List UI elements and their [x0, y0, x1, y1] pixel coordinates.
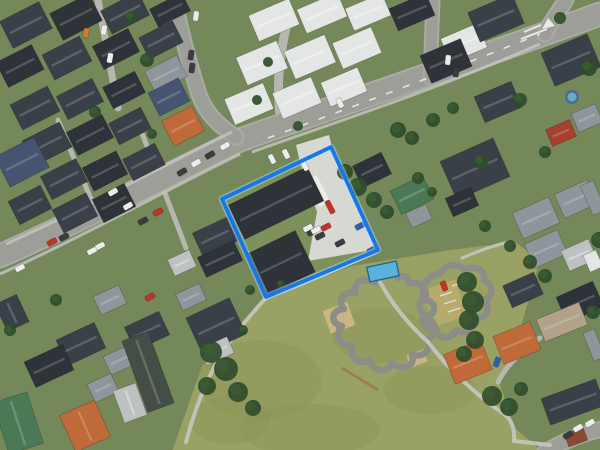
tree-highlight	[381, 206, 389, 214]
car	[193, 11, 200, 22]
tree-highlight	[90, 107, 97, 114]
tree-highlight	[253, 96, 259, 102]
car	[453, 67, 459, 77]
tree-highlight	[468, 333, 478, 343]
tree-highlight	[514, 94, 522, 102]
tree-highlight	[141, 54, 149, 62]
tree-highlight	[406, 132, 414, 140]
map-viewport[interactable]	[0, 0, 600, 450]
tree-highlight	[505, 241, 512, 248]
tree-highlight	[200, 379, 210, 389]
tree-highlight	[230, 384, 241, 395]
tree-highlight	[480, 221, 487, 228]
tree-highlight	[413, 173, 420, 180]
tree-highlight	[539, 270, 547, 278]
tree-highlight	[216, 359, 229, 372]
tree-highlight	[583, 62, 592, 71]
tree-highlight	[540, 147, 547, 154]
aerial-imagery	[0, 0, 600, 450]
tree-highlight	[502, 400, 512, 410]
tree-highlight	[448, 103, 455, 110]
tree-highlight	[524, 256, 532, 264]
tree-highlight	[239, 326, 245, 332]
tree-highlight	[464, 293, 476, 305]
tree-highlight	[5, 325, 12, 332]
tree-highlight	[294, 122, 300, 128]
tree-highlight	[458, 348, 467, 357]
tree-highlight	[475, 156, 483, 164]
car	[445, 55, 451, 65]
tree-highlight	[246, 286, 252, 292]
tree-highlight	[202, 343, 214, 355]
tree-highlight	[515, 383, 523, 391]
car	[188, 50, 195, 61]
tree-highlight	[427, 114, 435, 122]
tree-highlight	[428, 188, 434, 194]
tree-highlight	[148, 130, 154, 136]
tree-highlight	[484, 388, 495, 399]
tree-highlight	[459, 274, 470, 285]
tree-highlight	[392, 124, 401, 133]
tree-highlight	[461, 312, 472, 323]
pool-water	[568, 93, 577, 102]
tree-highlight	[278, 281, 282, 285]
tree-highlight	[368, 194, 377, 203]
tree-highlight	[555, 13, 562, 20]
tree-highlight	[247, 402, 256, 411]
car	[189, 63, 196, 74]
tree-highlight	[587, 306, 595, 314]
tree-highlight	[126, 12, 133, 19]
tree-highlight	[264, 58, 270, 64]
tree-highlight	[51, 295, 58, 302]
